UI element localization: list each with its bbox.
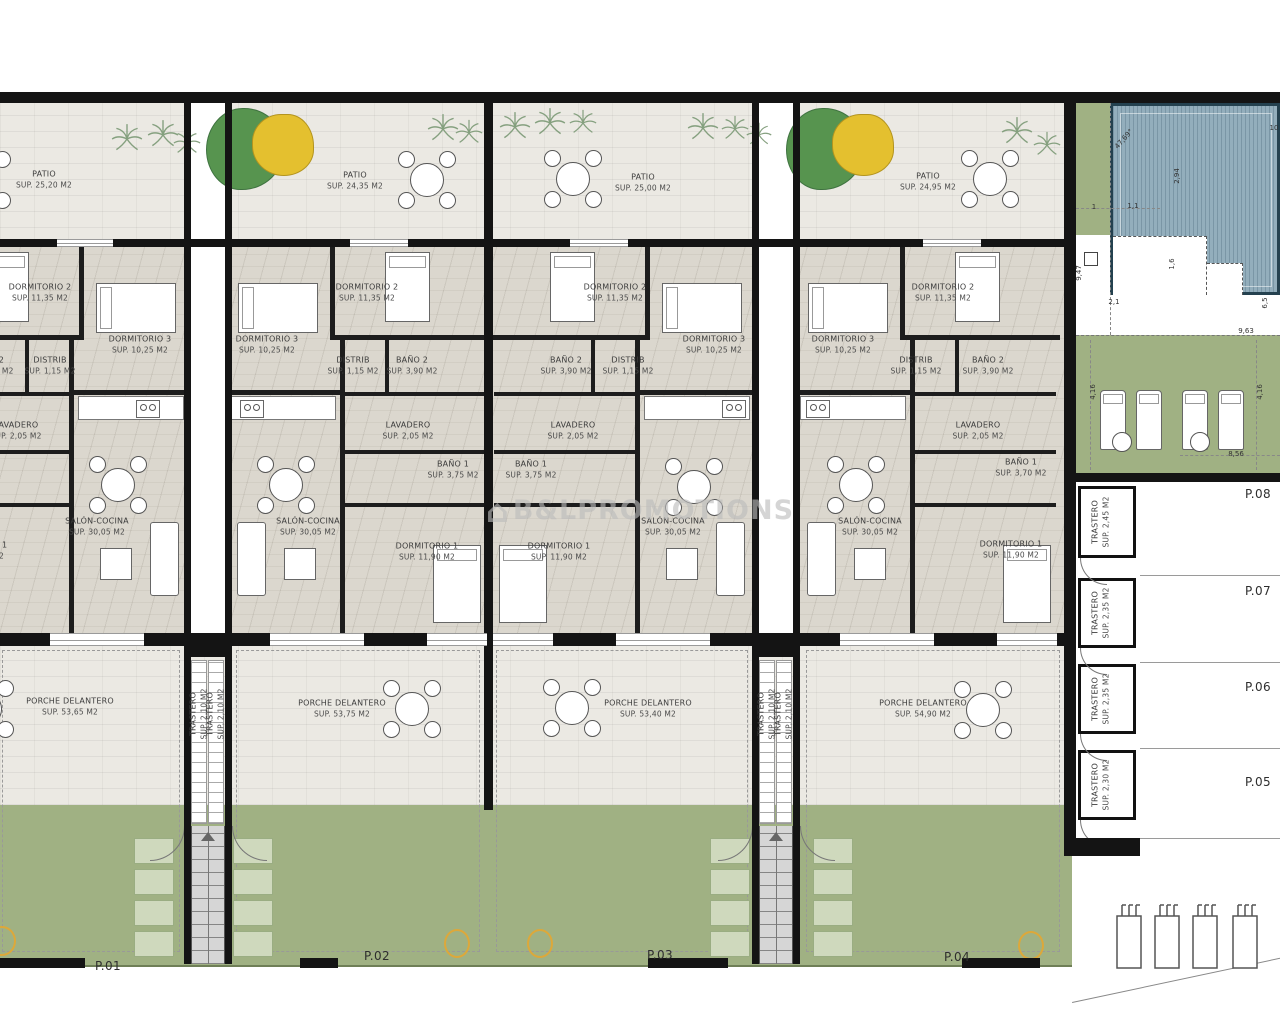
under-stair-storage xyxy=(759,660,775,824)
dimension-label: 2,94 xyxy=(1173,168,1181,184)
room-label-bano2-p01: BAÑO 2SUP. 3,90 M2 xyxy=(0,356,14,377)
bed xyxy=(96,283,176,333)
stove-icon xyxy=(722,400,746,418)
room-label-dorm3-p04: DORMITORIO 3SUP. 10,25 M2 xyxy=(812,335,875,356)
room-label-patio-p02: PATIOSUP. 24,35 M2 xyxy=(327,171,383,192)
room-label-porche-p04: PORCHE DELANTEROSUP. 54,90 M2 xyxy=(879,699,967,720)
under-stair-storage xyxy=(191,660,207,824)
room-label-distrib-p01: DISTRIBSUP. 1,15 M2 xyxy=(24,356,75,377)
dimension-line xyxy=(1076,208,1160,209)
room-label-bano1-p02: BAÑO 1SUP. 3,75 M2 xyxy=(427,460,478,481)
shrub-icon xyxy=(444,929,470,958)
window xyxy=(493,633,553,646)
staircase xyxy=(759,826,793,964)
tree-icon xyxy=(832,114,894,176)
dimension-label: 9,63 xyxy=(1238,327,1254,335)
room-label-salon-p01: SALÓN-COCINASUP. 30,05 M2 xyxy=(65,517,129,538)
sun-lounger xyxy=(1136,390,1162,450)
bed xyxy=(238,283,318,333)
bike-rack-icon xyxy=(1114,900,1144,972)
room-label-lavadero-p01: LAVADEROSUP. 2,05 M2 xyxy=(0,421,42,442)
coffee-table xyxy=(100,548,132,580)
trastero-label: TRASTEROSUP. 2,10 M2 xyxy=(206,688,227,739)
dimension-label: 1,1 xyxy=(1127,202,1138,210)
sofa xyxy=(150,522,179,596)
bed xyxy=(808,283,888,333)
room-label-dorm3-p02: DORMITORIO 3SUP. 10,25 M2 xyxy=(236,335,299,356)
dimension-line xyxy=(1090,340,1091,470)
porch-table-set xyxy=(540,676,604,740)
wall xyxy=(184,645,232,657)
pool-notch xyxy=(1113,236,1207,295)
parking-divider xyxy=(1140,838,1280,839)
sun-lounger xyxy=(1218,390,1244,450)
pool-notch-step xyxy=(1207,263,1243,295)
room-label-bano2-p03: BAÑO 2SUP. 3,90 M2 xyxy=(540,356,591,377)
room-label-patio-p01: PATIOSUP. 25,20 M2 xyxy=(16,170,72,191)
pool-side-green xyxy=(1076,103,1110,235)
window xyxy=(350,239,408,247)
parking-divider xyxy=(1140,662,1280,663)
room-label-bano1-p03: BAÑO 1SUP. 3,75 M2 xyxy=(505,460,556,481)
room-label-bano2-p02: BAÑO 2SUP. 3,90 M2 xyxy=(386,356,437,377)
plot-label-p02: P.02 xyxy=(364,949,390,963)
outdoor-shower-icon xyxy=(1084,252,1098,266)
room-label-bano2-p04: BAÑO 2SUP. 3,90 M2 xyxy=(962,356,1013,377)
coffee-table xyxy=(854,548,886,580)
wall-corridor-a xyxy=(225,92,232,964)
watermark: ⌂B&LPROMOTIONS xyxy=(486,492,794,530)
wall-corridor-b xyxy=(793,92,800,964)
patio-table-set xyxy=(541,147,605,211)
dining-table-set xyxy=(254,453,318,517)
plot-label-p05: P.05 xyxy=(1245,775,1271,789)
window xyxy=(923,239,981,247)
room-label-lavadero-p02: LAVADEROSUP. 2,05 M2 xyxy=(382,421,433,442)
patio-table-set xyxy=(0,148,14,212)
stove-icon xyxy=(240,400,264,418)
watermark-text: B&LPROMOTIONS xyxy=(513,495,794,526)
tree-icon xyxy=(252,114,314,176)
wall-corridor-a xyxy=(184,92,191,964)
house-logo-icon: ⌂ xyxy=(486,492,510,530)
window xyxy=(427,633,487,646)
plot-label-p03: P.03 xyxy=(647,948,673,962)
palm-tree-icon xyxy=(533,106,567,140)
stair-direction-arrow-icon xyxy=(769,832,783,841)
window xyxy=(57,239,113,247)
room-label-dorm1-p01: DORMITORIO 1SUP. 11,90 M2 xyxy=(0,541,7,562)
sofa xyxy=(237,522,266,596)
corridor-b-floor xyxy=(759,96,793,645)
sofa xyxy=(807,522,836,596)
wall-patio xyxy=(0,239,1072,247)
stove-icon xyxy=(806,400,830,418)
trastero-label-p07: TRASTEROSUP. 2,35 M2 xyxy=(1091,587,1112,638)
porch-table-set xyxy=(0,677,17,741)
stove-icon xyxy=(136,400,160,418)
room-label-distrib-p04: DISTRIBSUP. 1,15 M2 xyxy=(890,356,941,377)
room-label-salon-p02: SALÓN-COCINASUP. 30,05 M2 xyxy=(276,517,340,538)
room-label-dorm2-p01: DORMITORIO 2SUP. 11,35 M2 xyxy=(9,283,72,304)
parking-divider xyxy=(1140,748,1280,749)
room-label-porche-p03: PORCHE DELANTEROSUP. 53,40 M2 xyxy=(604,699,692,720)
palm-tree-icon xyxy=(745,121,773,149)
trastero-label: TRASTEROSUP. 2,10 M2 xyxy=(774,688,795,739)
room-label-dorm2-p03: DORMITORIO 2SUP. 11,35 M2 xyxy=(584,283,647,304)
room-label-patio-p04: PATIOSUP. 24,95 M2 xyxy=(900,172,956,193)
dimension-label: 1,6 xyxy=(1168,258,1176,269)
room-label-dorm2-p04: DORMITORIO 2SUP. 11,35 M2 xyxy=(912,283,975,304)
window xyxy=(997,633,1057,646)
dimension-label: 8,56 xyxy=(1228,450,1244,458)
shrub-icon xyxy=(527,929,553,958)
staircase xyxy=(191,826,225,964)
plot-label-p08: P.08 xyxy=(1245,487,1271,501)
wall-right-boundary xyxy=(1064,92,1076,856)
room-label-dorm1-p03: DORMITORIO 1SUP. 11,90 M2 xyxy=(528,542,591,563)
sofa xyxy=(716,522,745,596)
room-label-distrib-p03: DISTRIBSUP. 1,15 M2 xyxy=(602,356,653,377)
patio-table-set xyxy=(395,148,459,212)
dimension-line xyxy=(1256,340,1257,470)
room-label-distrib-p02: DISTRIBSUP. 1,15 M2 xyxy=(327,356,378,377)
room-label-lavadero-p03: LAVADEROSUP. 2,05 M2 xyxy=(547,421,598,442)
bed xyxy=(662,283,742,333)
wall-top xyxy=(0,92,1280,103)
bike-rack-icon xyxy=(1190,900,1220,972)
wall xyxy=(752,645,800,657)
room-label-dorm1-p04: DORMITORIO 1SUP. 11,90 M2 xyxy=(980,540,1043,561)
room-label-porche-p02: PORCHE DELANTEROSUP. 53,75 M2 xyxy=(298,699,386,720)
kitchen-counter xyxy=(78,396,184,420)
stair-direction-arrow-icon xyxy=(201,832,215,841)
bike-rack-icon xyxy=(1230,900,1260,972)
wall xyxy=(1076,473,1280,482)
under-stair-storage xyxy=(776,660,792,824)
trastero-label-p05: TRASTEROSUP. 2,30 M2 xyxy=(1091,759,1112,810)
window xyxy=(50,633,144,646)
coffee-table xyxy=(284,548,316,580)
dimension-label: 6,5 xyxy=(1261,297,1269,308)
dimension-label: 1 xyxy=(1092,203,1096,211)
plot-label-p04: P.04 xyxy=(944,950,970,964)
room-label-dorm1-p02: DORMITORIO 1SUP. 11,90 M2 xyxy=(396,542,459,563)
dimension-label: 2,1 xyxy=(1108,298,1119,306)
trastero-label-p08: TRASTEROSUP. 2,45 M2 xyxy=(1091,496,1112,547)
palm-tree-icon xyxy=(686,111,720,145)
room-label-dorm2-p02: DORMITORIO 2SUP. 11,35 M2 xyxy=(336,283,399,304)
plot-label-p01: P.01 xyxy=(95,959,121,973)
room-label-patio-p03: PATIOSUP. 25,00 M2 xyxy=(615,173,671,194)
plot-label-p06: P.06 xyxy=(1245,680,1271,694)
side-table xyxy=(1190,432,1210,452)
coffee-table xyxy=(666,548,698,580)
patio-table-set xyxy=(958,147,1022,211)
room-label-lavadero-p04: LAVADEROSUP. 2,05 M2 xyxy=(952,421,1003,442)
dining-table-set xyxy=(824,453,888,517)
bike-rack-icon xyxy=(1152,900,1182,972)
trastero-label-p06: TRASTEROSUP. 2,35 M2 xyxy=(1091,673,1112,724)
window xyxy=(570,239,628,247)
floor-plan-canvas: PATIOSUP. 25,20 M2 DORMITORIO 2SUP. 11,3… xyxy=(0,0,1280,1024)
room-label-porche-p01: PORCHE DELANTEROSUP. 53,65 M2 xyxy=(26,697,114,718)
dining-table-set xyxy=(86,453,150,517)
porch-table-set xyxy=(380,677,444,741)
shrub-icon xyxy=(1018,931,1044,960)
plot-label-p07: P.07 xyxy=(1245,584,1271,598)
wall-party xyxy=(484,92,493,810)
window xyxy=(840,633,934,646)
palm-tree-icon xyxy=(1032,130,1062,160)
dimension-label: 10 xyxy=(1270,124,1279,132)
dimension-label: 4,16 xyxy=(1256,384,1264,400)
window xyxy=(270,633,364,646)
room-label-salon-p04: SALÓN-COCINASUP. 30,05 M2 xyxy=(838,517,902,538)
side-table xyxy=(1112,432,1132,452)
palm-tree-icon xyxy=(498,110,532,144)
parking-divider xyxy=(1140,575,1280,576)
room-label-dorm3-p03: DORMITORIO 3SUP. 10,25 M2 xyxy=(683,335,746,356)
palm-tree-icon xyxy=(568,108,598,138)
palm-tree-icon xyxy=(454,118,484,148)
room-label-dorm3-p01: DORMITORIO 3SUP. 10,25 M2 xyxy=(109,335,172,356)
room-label-bano1-p04: BAÑO 1SUP. 3,70 M2 xyxy=(995,458,1046,479)
dimension-label: 4,16 xyxy=(1089,384,1097,400)
palm-tree-icon xyxy=(110,122,144,156)
dimension-label: 9,47 xyxy=(1075,265,1083,281)
window xyxy=(616,633,710,646)
palm-tree-icon xyxy=(1000,115,1034,149)
under-stair-storage xyxy=(208,660,224,824)
